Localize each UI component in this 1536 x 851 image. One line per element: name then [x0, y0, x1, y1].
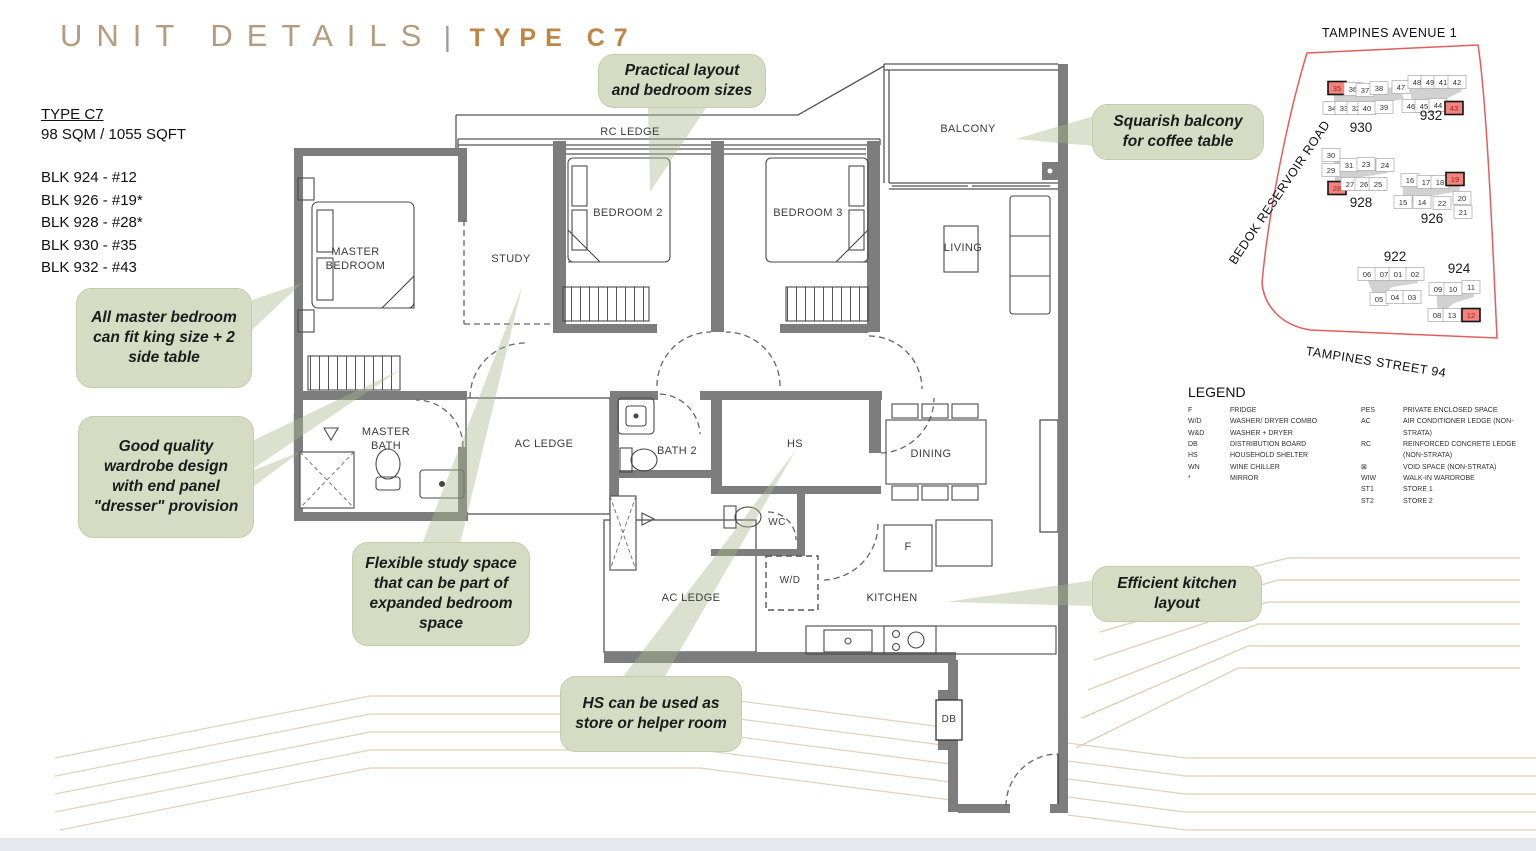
legend-row: ST2STORE 2: [1361, 496, 1520, 507]
sitemap-block-label-928: 928: [1350, 195, 1373, 210]
legend-desc: AIR CONDITIONER LEDGE (NON-STRATA): [1403, 416, 1520, 439]
legend-desc: WASHER + DRYER: [1230, 428, 1347, 439]
sitemap-unit-label-22: 22: [1438, 199, 1446, 208]
sitemap-unit-label-31: 31: [1345, 161, 1353, 170]
sitemap-unit-label-01: 01: [1394, 270, 1402, 279]
legend-row: W&DWASHER + DRYER: [1188, 428, 1347, 439]
sitemap-unit-label-07: 07: [1380, 270, 1388, 279]
sitemap-unit-label-14: 14: [1418, 198, 1426, 207]
sitemap-unit-label-15: 15: [1399, 198, 1407, 207]
legend-desc: WALK-IN WARDROBE: [1403, 473, 1520, 484]
legend-key: DB: [1188, 439, 1230, 450]
legend-key: W/D: [1188, 416, 1230, 427]
block-unit-list: BLK 924 - #12BLK 926 - #19*BLK 928 - #28…: [41, 167, 186, 280]
sitemap-unit-label-11: 11: [1467, 283, 1475, 292]
callout-wardrobe: Good quality wardrobe design with end pa…: [78, 416, 254, 538]
sitemap-block-label-922: 922: [1384, 249, 1407, 264]
legend-row: WIWWALK-IN WARDROBE: [1361, 473, 1520, 484]
legend-desc: HOUSEHOLD SHELTER: [1230, 450, 1347, 461]
sitemap-unit-label-19: 19: [1451, 175, 1459, 184]
callout-squarish-balcony: Squarish balcony for coffee table: [1092, 104, 1264, 160]
unit-type: TYPE C7: [41, 106, 186, 123]
callout-hs-store: HS can be used as store or helper room: [560, 676, 742, 752]
title-separator: |: [444, 21, 451, 52]
legend-row: RCREINFORCED CONCRETE LEDGE (NON-STRATA): [1361, 439, 1520, 462]
legend-row: ST1STORE 1: [1361, 484, 1520, 495]
callout-flexible-study: Flexible study space that can be part of…: [352, 542, 530, 646]
sitemap-block-label-926: 926: [1421, 211, 1444, 226]
legend-desc: PRIVATE ENCLOSED SPACE: [1403, 405, 1520, 416]
unit-info: TYPE C7 98 SQM / 1055 SQFT BLK 924 - #12…: [41, 106, 186, 280]
blk-line: BLK 928 - #28*: [41, 212, 186, 235]
sitemap-unit-label-40: 40: [1363, 104, 1371, 113]
sitemap-block-label-930: 930: [1350, 120, 1373, 135]
legend-column-right: PESPRIVATE ENCLOSED SPACEACAIR CONDITION…: [1361, 405, 1520, 507]
sitemap-unit-label-43: 43: [1450, 104, 1458, 113]
sitemap-unit-label-26: 26: [1360, 180, 1368, 189]
sitemap-unit-label-24: 24: [1381, 161, 1389, 170]
blk-line: BLK 924 - #12: [41, 167, 186, 190]
sitemap-unit-label-18: 18: [1436, 178, 1444, 187]
unit-area: 98 SQM / 1055 SQFT: [41, 126, 186, 143]
legend-row: FFRIDGE: [1188, 405, 1347, 416]
sitemap-unit-label-17: 17: [1422, 178, 1430, 187]
sitemap-unit-label-21: 21: [1459, 208, 1467, 217]
sitemap-unit-label-35: 35: [1333, 84, 1341, 93]
blk-line: BLK 930 - #35: [41, 235, 186, 258]
sitemap-unit-label-28: 28: [1333, 184, 1341, 193]
legend-desc: WINE CHILLER: [1230, 462, 1347, 473]
legend-key: *: [1188, 473, 1230, 484]
legend-desc: REINFORCED CONCRETE LEDGE (NON-STRATA): [1403, 439, 1520, 462]
legend-desc: STORE 1: [1403, 484, 1520, 495]
sitemap-unit-label-04: 04: [1391, 293, 1399, 302]
legend-desc: MIRROR: [1230, 473, 1347, 484]
sitemap-unit-label-49: 49: [1426, 78, 1434, 87]
site-map: 3536373847343332403993048494142464544439…: [1250, 25, 1536, 380]
sitemap-unit-label-16: 16: [1406, 176, 1414, 185]
legend-title: LEGEND: [1188, 384, 1520, 400]
legend: LEGEND FFRIDGEW/DWASHER/ DRYER COMBOW&DW…: [1188, 384, 1520, 507]
sitemap-unit-label-03: 03: [1408, 293, 1416, 302]
sitemap-unit-label-20: 20: [1458, 194, 1466, 203]
legend-key: ST1: [1361, 484, 1403, 495]
legend-key: ⊠: [1361, 462, 1403, 473]
sitemap-unit-label-46: 46: [1407, 102, 1415, 111]
sitemap-unit-label-30: 30: [1327, 151, 1335, 160]
sitemap-block-label-932: 932: [1420, 108, 1443, 123]
blk-line: BLK 926 - #19*: [41, 190, 186, 213]
title-unit-details: UNIT DETAILS: [60, 18, 435, 53]
sitemap-unit-label-23: 23: [1362, 160, 1370, 169]
page: UNIT DETAILS | TYPE C7 TYPE C7 98 SQM / …: [0, 0, 1536, 851]
callout-practical-layout: Practical layout and bedroom sizes: [598, 54, 766, 108]
legend-row: W/DWASHER/ DRYER COMBO: [1188, 416, 1347, 427]
callout-efficient-kitchen: Efficient kitchen layout: [1092, 566, 1262, 622]
legend-key: HS: [1188, 450, 1230, 461]
sitemap-unit-label-27: 27: [1346, 180, 1354, 189]
legend-row: *MIRROR: [1188, 473, 1347, 484]
sitemap-unit-label-13: 13: [1448, 311, 1456, 320]
legend-key: ST2: [1361, 496, 1403, 507]
legend-desc: FRIDGE: [1230, 405, 1347, 416]
sitemap-unit-label-02: 02: [1411, 270, 1419, 279]
sitemap-unit-label-06: 06: [1363, 270, 1371, 279]
sitemap-unit-label-47: 47: [1397, 83, 1405, 92]
road-label-tampines-avenue-1: TAMPINES AVENUE 1: [1322, 26, 1457, 40]
sitemap-unit-label-48: 48: [1413, 78, 1421, 87]
page-bottom-strip: [0, 838, 1536, 851]
sitemap-unit-label-08: 08: [1433, 311, 1441, 320]
legend-key: WIW: [1361, 473, 1403, 484]
sitemap-unit-label-29: 29: [1327, 166, 1335, 175]
legend-row: PESPRIVATE ENCLOSED SPACE: [1361, 405, 1520, 416]
sitemap-unit-label-12: 12: [1467, 311, 1475, 320]
legend-column-left: FFRIDGEW/DWASHER/ DRYER COMBOW&DWASHER +…: [1188, 405, 1347, 507]
sitemap-unit-label-41: 41: [1439, 78, 1447, 87]
legend-row: WNWINE CHILLER: [1188, 462, 1347, 473]
title-type-c7: TYPE C7: [469, 24, 636, 52]
legend-key: W&D: [1188, 428, 1230, 439]
sitemap-block-label-924: 924: [1448, 261, 1471, 276]
legend-key: F: [1188, 405, 1230, 416]
callout-master-bedroom: All master bedroom can fit king size + 2…: [76, 288, 252, 388]
legend-key: WN: [1188, 462, 1230, 473]
legend-desc: DISTRIBUTION BOARD: [1230, 439, 1347, 450]
sitemap-unit-label-10: 10: [1449, 285, 1457, 294]
legend-row: HSHOUSEHOLD SHELTER: [1188, 450, 1347, 461]
blk-line: BLK 932 - #43: [41, 257, 186, 280]
legend-key: RC: [1361, 439, 1403, 462]
legend-row: ACAIR CONDITIONER LEDGE (NON-STRATA): [1361, 416, 1520, 439]
sitemap-unit-label-37: 37: [1361, 86, 1369, 95]
legend-desc: WASHER/ DRYER COMBO: [1230, 416, 1347, 427]
sitemap-unit-label-38: 38: [1375, 84, 1383, 93]
sitemap-unit-label-05: 05: [1375, 295, 1383, 304]
legend-key: AC: [1361, 416, 1403, 439]
legend-row: DBDISTRIBUTION BOARD: [1188, 439, 1347, 450]
sitemap-unit-label-42: 42: [1453, 78, 1461, 87]
sitemap-unit-label-25: 25: [1374, 180, 1382, 189]
legend-row: ⊠VOID SPACE (NON-STRATA): [1361, 462, 1520, 473]
page-title: UNIT DETAILS | TYPE C7: [60, 18, 637, 54]
sitemap-unit-label-09: 09: [1434, 285, 1442, 294]
legend-desc: VOID SPACE (NON-STRATA): [1403, 462, 1520, 473]
legend-key: PES: [1361, 405, 1403, 416]
legend-desc: STORE 2: [1403, 496, 1520, 507]
sitemap-unit-label-39: 39: [1380, 103, 1388, 112]
